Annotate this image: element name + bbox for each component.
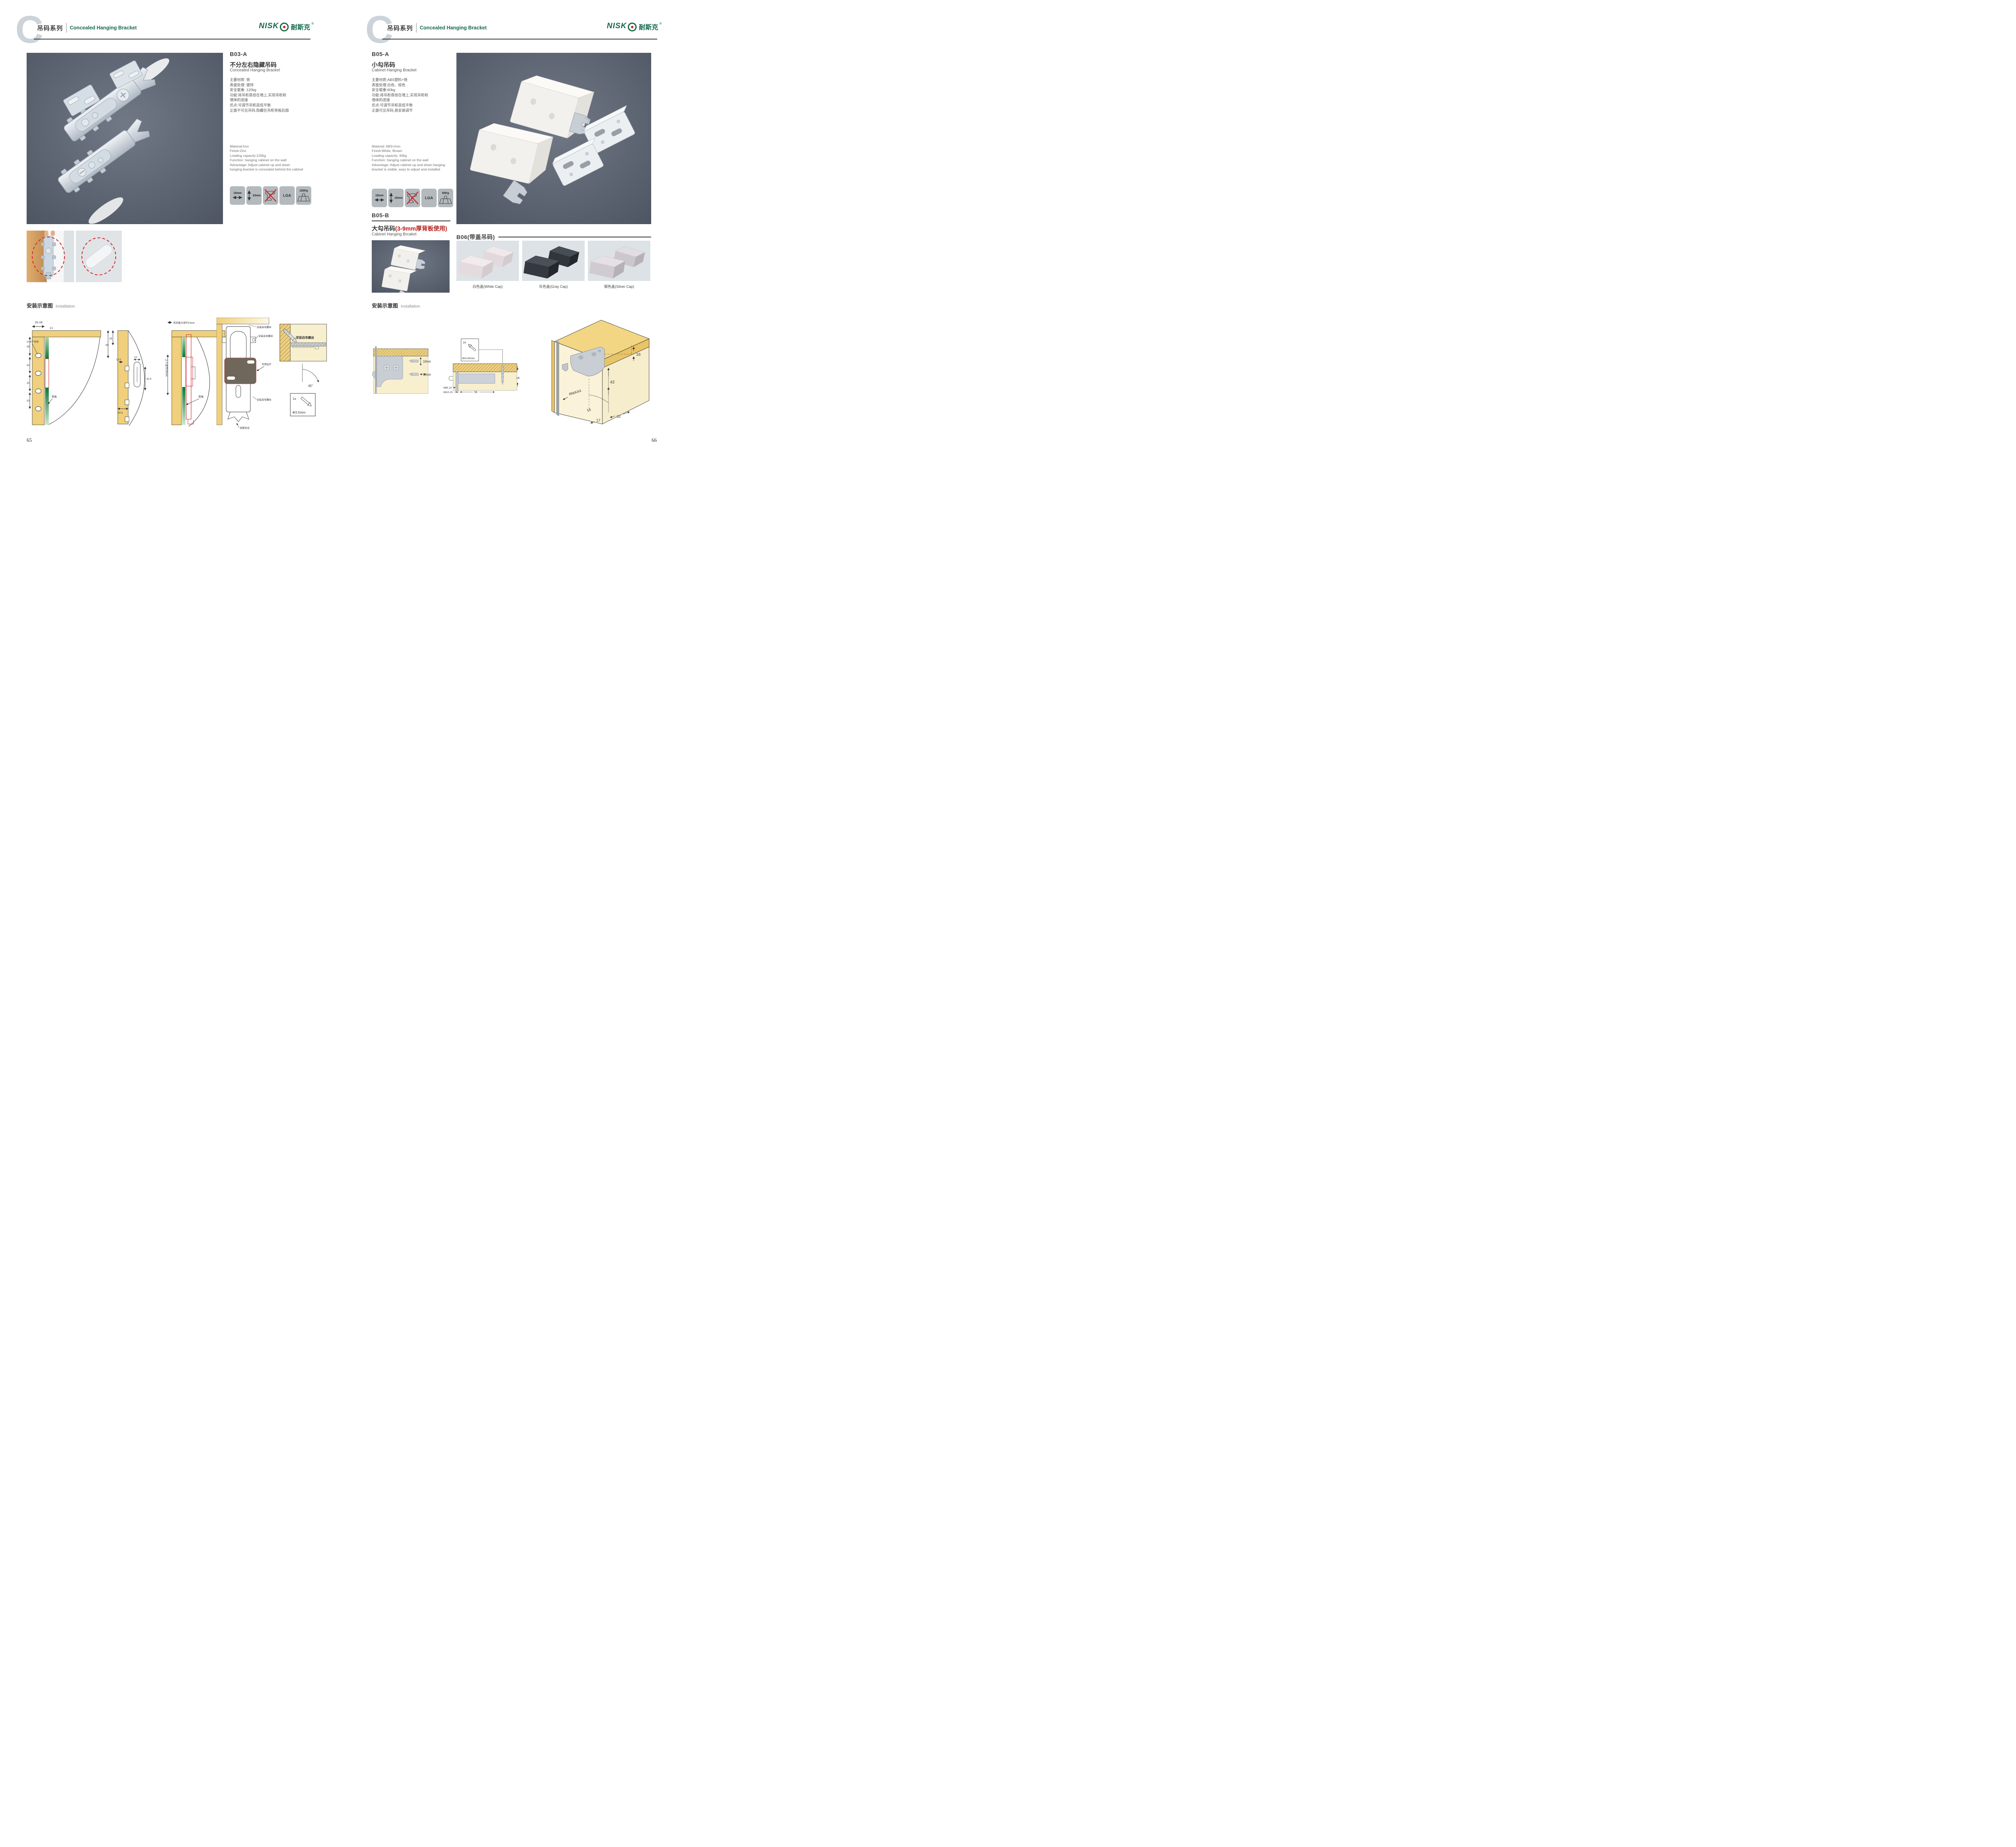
logo-text: NISK: [607, 22, 627, 31]
product-title-zh: 大勾吊码(3-9mm厚背板使用): [372, 224, 447, 233]
b06-rule: [498, 237, 651, 237]
install-diagram-bracket-front: 安装自攻螺丝 安装自攻螺丝 专用挂片 安装自攻螺丝 锁紧状态: [217, 318, 277, 433]
svg-text:32: 32: [27, 364, 30, 367]
installation-header: 安装示意图 Installation: [372, 302, 420, 309]
logo-o-icon: [280, 23, 289, 31]
install-diagram-screw-detail: 安装自攻螺丝 45° 1x Φ3.5mm: [279, 322, 327, 420]
install-diagram-isometric: 16 42 RMAX4 16 17 32: [548, 315, 654, 431]
svg-text:背板: 背板: [198, 395, 204, 398]
svg-text:前后最大调节10mm: 前后最大调节10mm: [173, 321, 195, 324]
svg-text:35: 35: [27, 345, 30, 348]
badge-no-drill: [405, 189, 420, 207]
series-title-zh: 吊码系列: [387, 24, 413, 32]
specs-zh: 主要材质:ABS塑料+铁 表面处理:白色、棕色 安全载重:60kg 功能:将吊柜…: [372, 77, 454, 113]
finger: [44, 231, 48, 237]
svg-text:专用挂片: 专用挂片: [262, 363, 271, 366]
badge-no-drill: [263, 186, 278, 205]
svg-text:安装自攻螺丝: 安装自攻螺丝: [296, 335, 314, 339]
svg-text:Φ3.5mm: Φ3.5mm: [292, 410, 306, 414]
badge-load: 120Kg: [296, 186, 311, 205]
svg-text:32: 32: [616, 414, 621, 418]
logo-text: NISK: [259, 22, 279, 31]
svg-text:MIN.10: MIN.10: [444, 387, 452, 389]
svg-text:10-4个均布: 10-4个均布: [27, 340, 39, 343]
specs-en: Material: ABS+Iron Finish:White, Brown L…: [372, 144, 458, 172]
b05a-product-photo: [456, 53, 651, 224]
svg-text:58: 58: [474, 391, 477, 394]
width-arrow-icon: [373, 198, 385, 202]
feature-badges: 10mm 10mm LGA 120Kg: [230, 186, 311, 205]
install-diagram-slot-dims: 35 60 12.5 12 42.5 20.5: [106, 318, 162, 429]
svg-text:16-18: 16-18: [35, 320, 42, 324]
load-capacity-icon: [439, 196, 452, 204]
installation-header: 安装示意图 Installation: [27, 302, 75, 309]
svg-text:42: 42: [610, 380, 615, 385]
b03a-cover-photo: [76, 231, 122, 282]
registered-mark: ®: [659, 22, 662, 25]
page-number-right: 66: [652, 437, 657, 443]
badge-lga: LGA: [421, 189, 437, 207]
svg-text:32: 32: [27, 399, 30, 402]
series-title-zh: 吊码系列: [37, 24, 63, 32]
b03a-install-photo: [27, 231, 74, 282]
page-header-right: 吊码系列 Concealed Hanging Bracket: [387, 21, 487, 35]
badge-panel-height: 10mm: [388, 189, 404, 207]
load-capacity-icon: [297, 193, 310, 202]
product-code: B05-A: [372, 51, 389, 57]
nisko-logo-right: NISK 耐斯克 ®: [607, 22, 662, 31]
svg-text:背板: 背板: [52, 395, 57, 398]
svg-text:安装自攻螺丝: 安装自攻螺丝: [257, 326, 271, 329]
product-title-zh: 不分左右隐藏吊码: [230, 60, 277, 69]
svg-text:60: 60: [106, 344, 109, 347]
no-drill-icon: [406, 191, 419, 205]
product-title-en: Cabinet Hanging Brcaket: [372, 232, 417, 237]
specs-en: Material:Iron Finish:Zinc Loading capaci…: [230, 144, 314, 172]
install-diagram-bracket-section: 10mm 15mm: [371, 343, 431, 398]
series-title-en: Concealed Hanging Bracket: [420, 25, 487, 31]
svg-text:2x: 2x: [463, 341, 466, 344]
header-rule-left: [34, 39, 310, 40]
logo-o-icon: [628, 23, 637, 31]
cap-photo-silver: [588, 241, 650, 281]
svg-text:1x: 1x: [293, 397, 296, 401]
logo-text-zh: 耐斯克: [291, 22, 310, 31]
svg-text:32: 32: [27, 382, 30, 385]
svg-text:MAX.23: MAX.23: [444, 391, 453, 394]
page-header-left: 吊码系列 Concealed Hanging Bracket: [37, 21, 137, 35]
badge-panel-width: 15mm: [372, 189, 387, 207]
feature-badges: 15mm 10mm LGA 60Kg: [372, 189, 453, 207]
badge-panel-width: 10mm: [230, 186, 245, 205]
badge-panel-height: 10mm: [246, 186, 262, 205]
product-title-en: Cabinet Hanging Bracket: [372, 68, 417, 73]
cap-label: 银色盖(Silver Cap): [588, 284, 650, 289]
svg-text:45°: 45°: [308, 384, 313, 388]
cap-photo-white: [456, 241, 519, 281]
svg-text:18: 18: [516, 376, 520, 380]
product-title-en: Concealed Hanging Bracket: [230, 68, 280, 73]
svg-text:16: 16: [636, 353, 641, 357]
series-title-en: Concealed Hanging Bracket: [70, 25, 137, 31]
specs-zh: 主要材质: 铁 表面处理: 镀锌 安全载重: 120kg 功能:将吊柜悬挂在墙上…: [230, 77, 312, 113]
width-arrow-icon: [231, 196, 244, 200]
header-divider: [416, 23, 417, 33]
badge-load: 60Kg: [438, 189, 453, 207]
nisko-logo-left: NISK 耐斯克 ®: [259, 22, 314, 31]
height-arrow-icon: [247, 189, 251, 202]
svg-text:上下调节10mm: 上下调节10mm: [165, 359, 169, 376]
install-diagram-hole-spacing: 16-18 3.5 35 32 32 32 10-4个均布 背板: [27, 318, 103, 429]
svg-text:15mm: 15mm: [423, 373, 431, 376]
b06-header: B06(带盖吊码): [456, 233, 651, 241]
registered-mark: ®: [311, 22, 314, 25]
b03a-product-photo: [27, 53, 223, 224]
svg-text:安装自攻螺丝: 安装自攻螺丝: [258, 335, 273, 338]
finger: [51, 231, 55, 236]
svg-text:安装自攻螺丝: 安装自攻螺丝: [257, 398, 271, 401]
cap-label: 白色盖(White Cap): [456, 284, 519, 289]
product-title-zh: 小勾吊码: [372, 60, 395, 69]
svg-text:17: 17: [596, 418, 600, 422]
svg-text:42.5: 42.5: [146, 378, 152, 381]
b05b-product-photo: [372, 240, 450, 293]
catalog-spread: C 吊码系列 Concealed Hanging Bracket NISK 耐斯…: [0, 0, 676, 462]
b05b-rule: [372, 220, 450, 221]
svg-text:Φ4×30mm: Φ4×30mm: [462, 357, 475, 360]
badge-lga: LGA: [279, 186, 295, 205]
cap-photo-gray: [522, 241, 585, 281]
svg-text:3.5: 3.5: [50, 327, 53, 330]
logo-text-zh: 耐斯克: [639, 22, 658, 31]
title-note-red: (3-9mm厚背板使用): [395, 226, 447, 232]
header-divider: [66, 23, 67, 33]
svg-text:12.5: 12.5: [116, 359, 121, 361]
svg-text:10mm: 10mm: [423, 360, 431, 363]
svg-text:20.5: 20.5: [118, 412, 123, 414]
product-code: B03-A: [230, 51, 247, 57]
header-rule-right: [382, 39, 657, 40]
svg-text:锁紧状态: 锁紧状态: [240, 426, 250, 430]
install-diagram-screw-section: 2x Φ4×30mm 18 MIN.10 MAX.23 58: [444, 338, 520, 394]
page-number-left: 65: [27, 437, 32, 443]
no-drill-icon: [264, 189, 277, 202]
height-arrow-icon: [389, 191, 393, 204]
svg-text:12: 12: [134, 356, 137, 359]
svg-text:35: 35: [109, 337, 112, 340]
product-code: B05-B: [372, 212, 389, 218]
cap-label: 灰色盖(Gray Cap): [522, 284, 585, 289]
